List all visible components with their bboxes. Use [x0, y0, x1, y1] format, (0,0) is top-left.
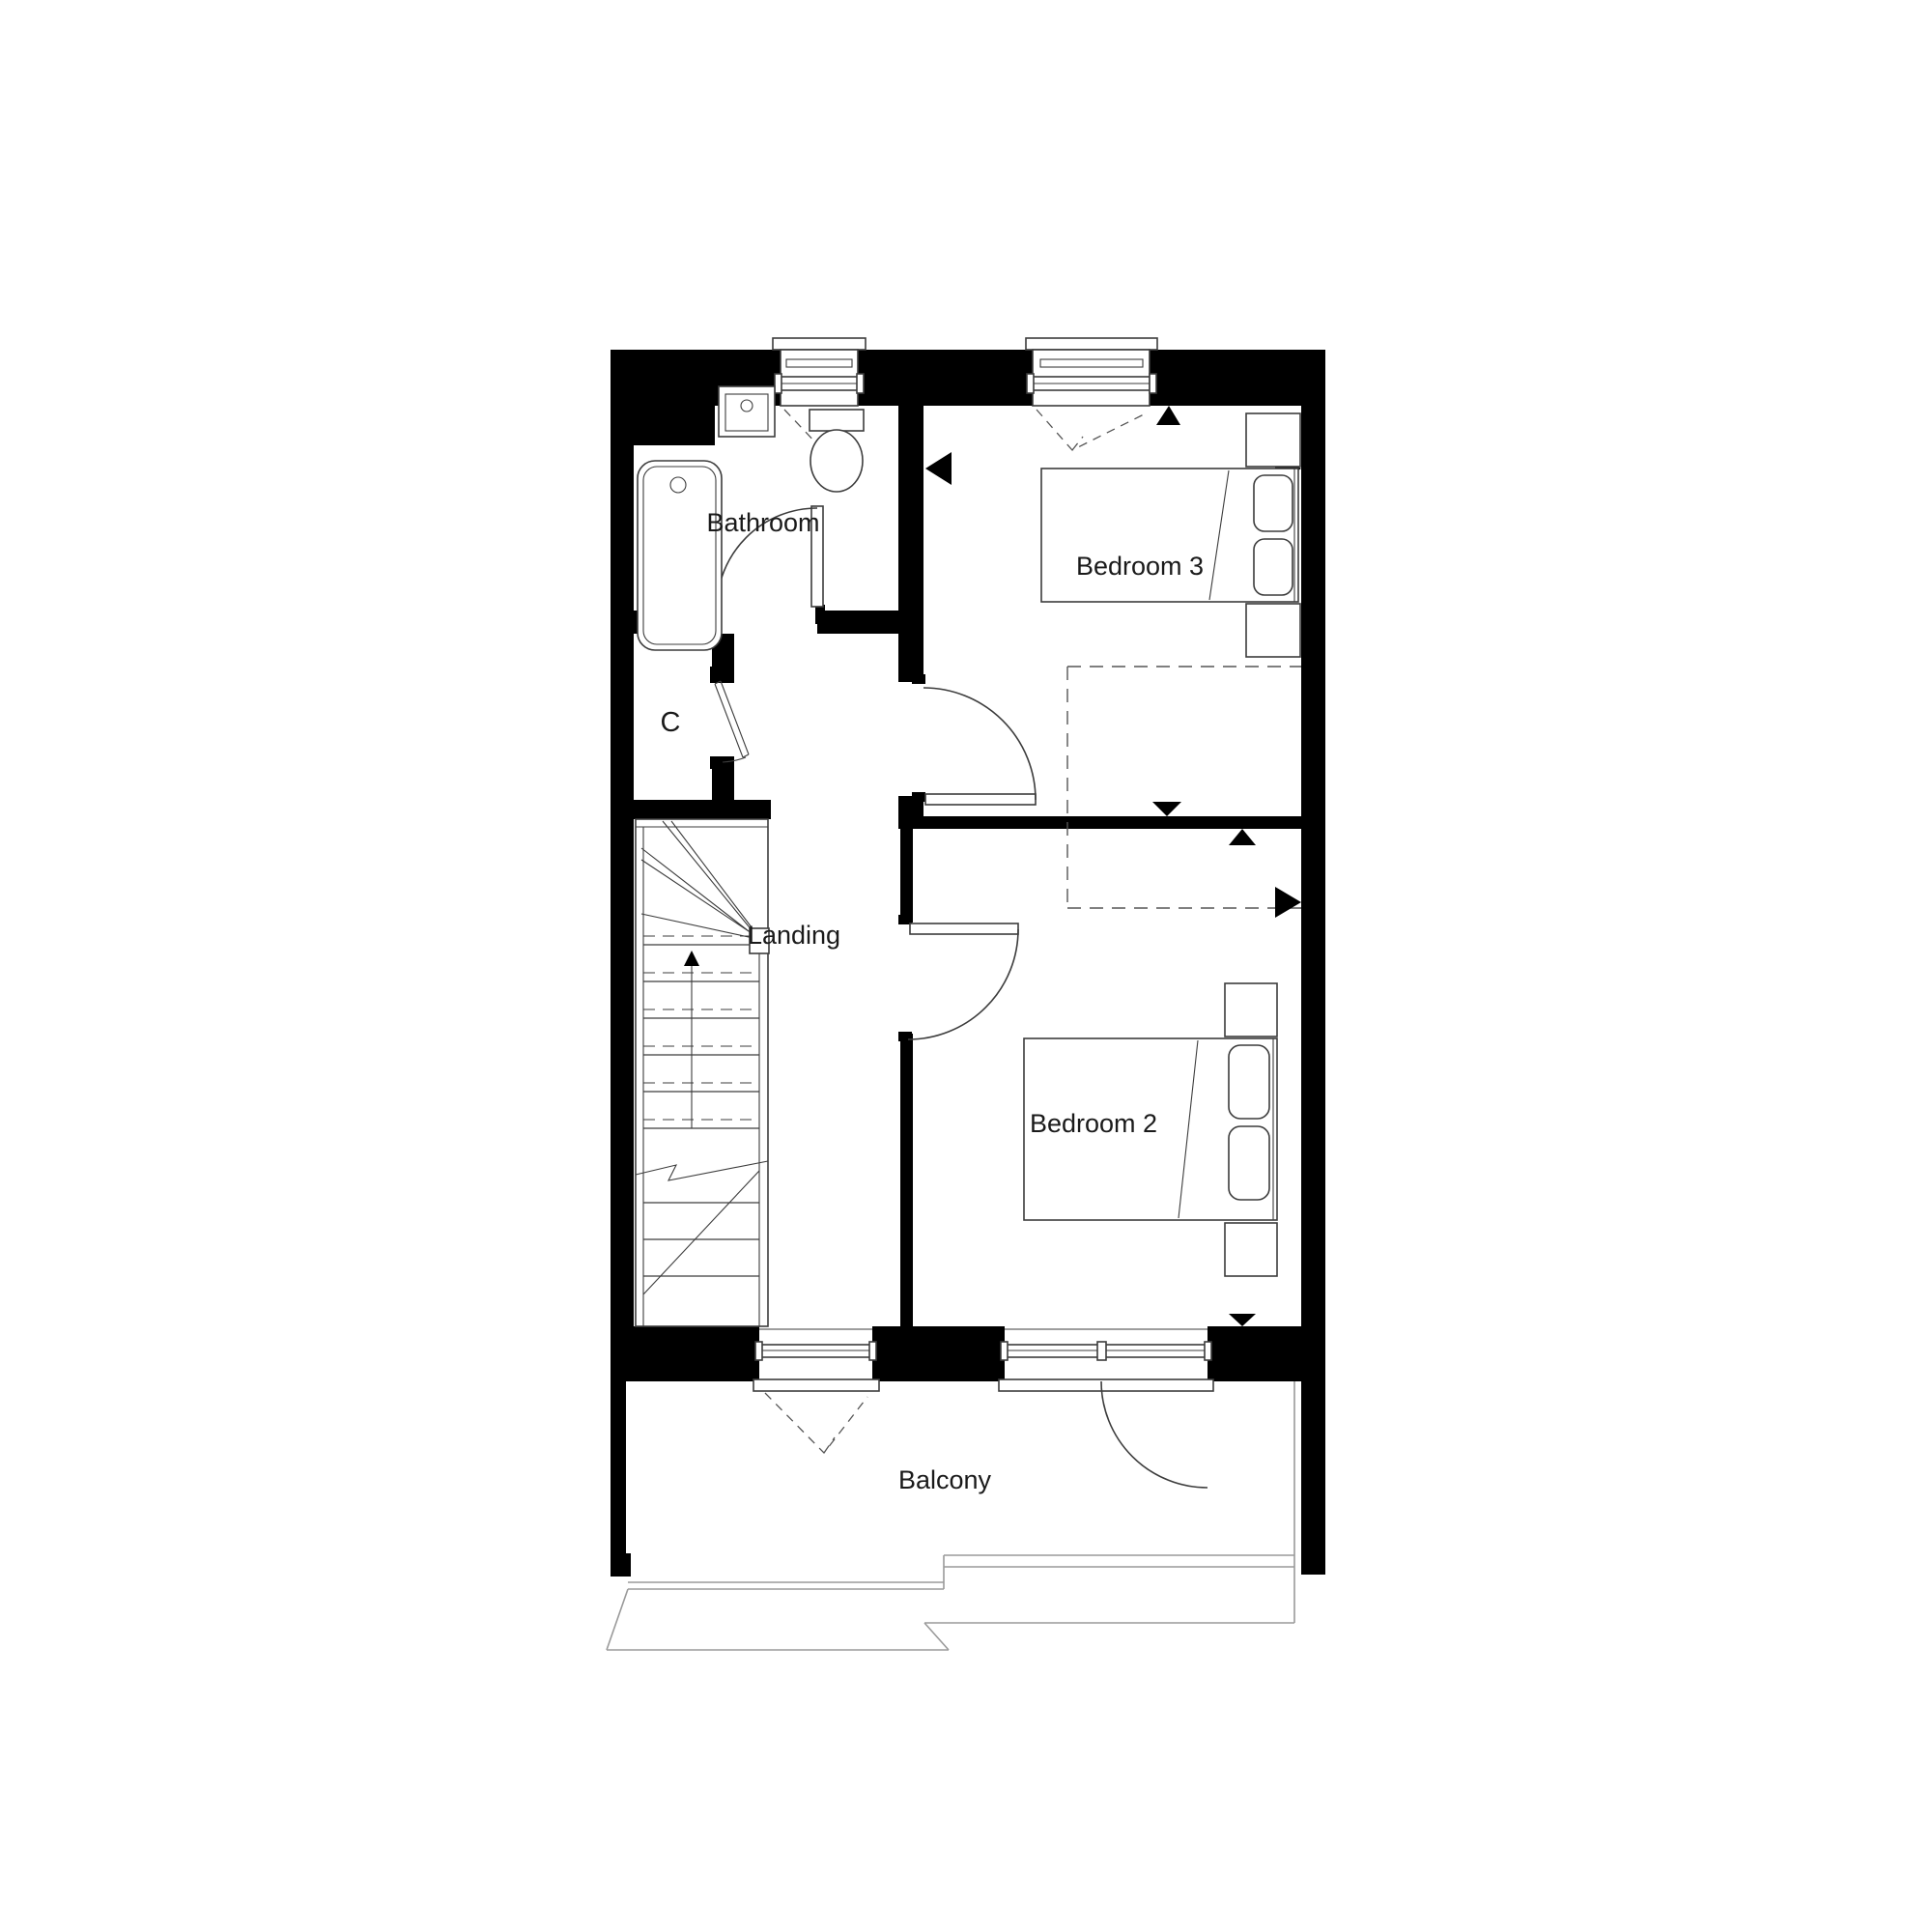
bathroom-label: Bathroom: [706, 508, 819, 537]
window-cap: [1150, 374, 1156, 393]
window-sill: [999, 1379, 1213, 1391]
bedroom3-window: [1026, 338, 1157, 450]
bedroom3-door: [912, 674, 1036, 805]
staircase: [636, 819, 769, 1326]
door-jamb: [912, 792, 925, 802]
nightstand: [1225, 1223, 1277, 1276]
toilet: [810, 410, 864, 492]
nightstand: [1246, 604, 1300, 657]
door-jamb: [912, 674, 925, 684]
landing-label: Landing: [748, 921, 840, 950]
nightstand: [1225, 983, 1277, 1037]
marker-triangle: [1152, 802, 1181, 816]
wall-segment: [900, 1034, 913, 1326]
window-mullion: [1097, 1342, 1106, 1360]
balcony-label: Balcony: [898, 1465, 992, 1494]
window-cap: [869, 1342, 876, 1360]
door-leaf: [715, 681, 749, 757]
toilet-cistern: [810, 410, 864, 431]
cupboard-label: C: [661, 707, 681, 738]
wall-segment: [1207, 1326, 1325, 1381]
floor-plan-drawing: Bathroom C Landing Bedroom 3 Bedroom 2 B…: [0, 0, 1932, 1932]
balcony-and-roof: [607, 1381, 1294, 1650]
door-jamb: [710, 667, 724, 683]
nightstand: [1246, 413, 1300, 467]
basin: [719, 386, 775, 437]
marker-triangle: [1156, 406, 1180, 425]
window-sill: [773, 338, 866, 350]
wall-segment: [900, 829, 913, 923]
door-leaf: [910, 923, 1018, 934]
roof-hip: [924, 1623, 949, 1650]
bed-pillow: [1254, 475, 1293, 531]
door-leaf: [925, 794, 1036, 805]
window-opening-direction: [1037, 410, 1146, 450]
window-cap: [1205, 1342, 1211, 1360]
wall-segment: [634, 406, 715, 445]
wall-segment: [611, 1381, 626, 1560]
balcony-door-swing: [1101, 1381, 1207, 1488]
window-cap: [857, 374, 864, 393]
bedroom2-label: Bedroom 2: [1030, 1109, 1157, 1138]
floor-plan-page: Bathroom C Landing Bedroom 3 Bedroom 2 B…: [0, 0, 1932, 1932]
window-cap: [755, 1342, 762, 1360]
bed-pillow: [1229, 1045, 1269, 1119]
bed-pillow: [1254, 539, 1293, 595]
balcony-door-window: [999, 1329, 1213, 1488]
bed-pillow: [1229, 1126, 1269, 1200]
door-swing: [923, 688, 1036, 800]
wall-segment: [872, 1326, 1005, 1381]
bathtub-outer: [638, 461, 722, 650]
bedroom3-bed: [1041, 413, 1300, 657]
wall-segment: [898, 816, 1301, 829]
window-opening-direction: [765, 1393, 867, 1453]
window-cap: [775, 374, 781, 393]
wall-segment: [611, 350, 634, 1381]
wall-segment: [1301, 350, 1325, 1575]
roof-hip: [607, 1589, 628, 1650]
door-swing: [908, 929, 1018, 1039]
wall-segment: [898, 406, 923, 682]
window-sill: [1026, 338, 1157, 350]
wall-segment: [611, 800, 771, 819]
marker-triangle: [925, 452, 952, 485]
door-jamb: [710, 756, 724, 769]
landing-window: [753, 1329, 879, 1453]
marker-triangle: [1229, 829, 1256, 845]
bedroom2-door: [898, 915, 1018, 1041]
window-sill: [753, 1379, 879, 1391]
bedroom3-label: Bedroom 3: [1076, 552, 1204, 581]
window-cap: [1027, 374, 1034, 393]
door-jamb: [815, 605, 825, 624]
bathtub: [638, 461, 722, 650]
toilet-bowl: [810, 430, 863, 492]
window-cap: [1001, 1342, 1008, 1360]
dashed-zone-outline: [1067, 667, 1301, 908]
wall-segment: [611, 1326, 759, 1381]
wall-segment: [858, 350, 1033, 406]
marker-triangle: [1275, 887, 1301, 918]
marker-triangle: [1229, 1314, 1256, 1326]
wall-segment: [611, 1553, 631, 1577]
wall-segment: [1150, 350, 1325, 406]
